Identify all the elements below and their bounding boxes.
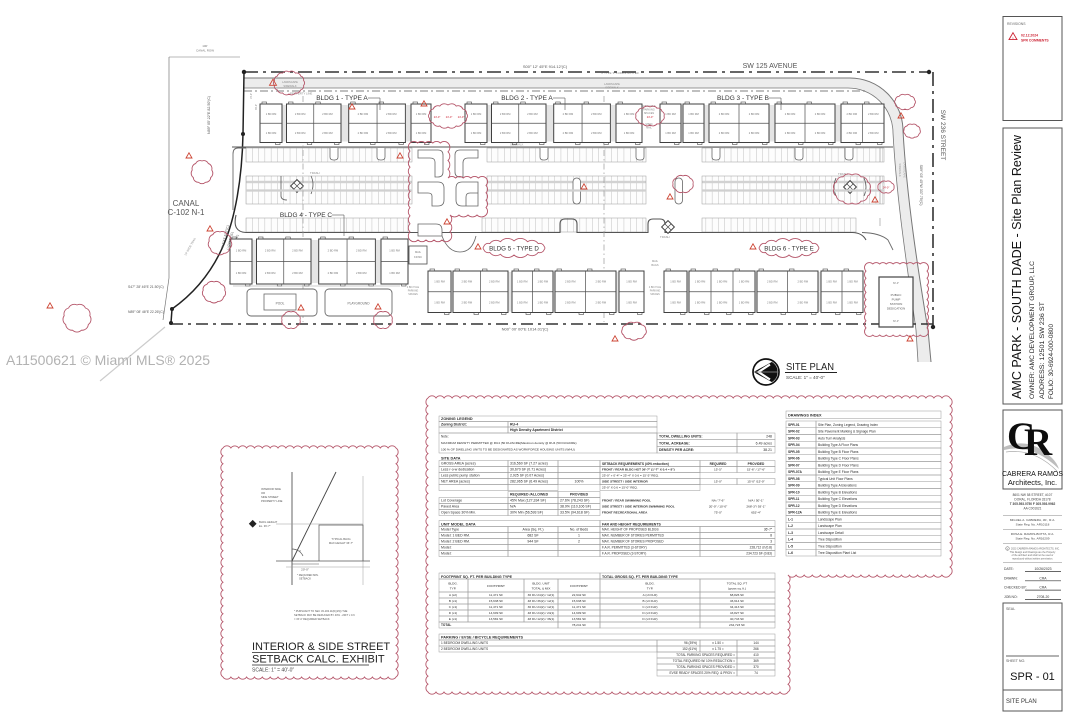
svg-text:SPR COMMENTS: SPR COMMENTS	[1021, 39, 1049, 43]
svg-text:Tree Disposition: Tree Disposition	[818, 538, 842, 542]
svg-text:A (x3 FLR): A (x3 FLR)	[643, 593, 658, 597]
svg-text:410: 410	[753, 653, 759, 657]
svg-text:682 SF: 682 SF	[527, 534, 538, 538]
svg-text:1 BD RM: 1 BD RM	[626, 280, 637, 284]
svg-text:SW 125 AVENUE: SW 125 AVENUE	[743, 63, 798, 70]
svg-text:BLDG 6 - TYPE E: BLDG 6 - TYPE E	[764, 246, 813, 253]
svg-text:Auto Turn Analysis: Auto Turn Analysis	[818, 436, 846, 440]
svg-text:SITE PLAN: SITE PLAN	[786, 361, 834, 373]
svg-text:ZONING LEGEND: ZONING LEGEND	[441, 417, 473, 421]
svg-text:36'-7″: 36'-7″	[764, 528, 773, 532]
svg-text:AMC PARK - SOUTH DADE - Site P: AMC PARK - SOUTH DADE - Site Plan Review	[1009, 134, 1024, 399]
svg-text:T 305.593.0750 F 305.593.9962: T 305.593.0750 F 305.593.9962	[1010, 502, 1056, 506]
svg-text:NA / 7'-6″: NA / 7'-6″	[712, 499, 726, 503]
svg-text:35'-0″: 35'-0″	[255, 104, 258, 110]
svg-text:8: 8	[770, 534, 772, 538]
svg-text:45% Max (127,334 SF): 45% Max (127,334 SF)	[510, 499, 546, 503]
svg-text:N89° 05′ 22″E 82.50′(C): N89° 05′ 22″E 82.50′(C)	[207, 96, 211, 134]
svg-text:S47° 28′ 46″E 21.50′(C): S47° 28′ 46″E 21.50′(C)	[128, 285, 164, 289]
svg-text:234,723 SF (0.83): 234,723 SF (0.83)	[746, 552, 772, 556]
svg-text:Note:: Note:	[441, 435, 449, 439]
svg-text:Paved Area: Paved Area	[441, 505, 459, 509]
svg-text:2 BD RM: 2 BD RM	[527, 131, 538, 135]
svg-text:CABRERA RAMOS: CABRERA RAMOS	[1002, 471, 1063, 478]
svg-text:State Reg. No. AR10118: State Reg. No. AR10118	[1016, 523, 1050, 527]
svg-text:2 BD RM: 2 BD RM	[489, 280, 500, 284]
svg-text:2 BD RM: 2 BD RM	[719, 131, 730, 135]
svg-text:1 BD RM: 1 BD RM	[717, 300, 728, 304]
svg-text:1 BD RM: 1 BD RM	[517, 300, 528, 304]
svg-text:PUBLIC: PUBLIC	[891, 293, 903, 297]
svg-text:1 BD RM: 1 BD RM	[739, 280, 750, 284]
svg-text:L-2: L-2	[788, 524, 793, 528]
svg-text:20'-0″ / 10'-0″: 20'-0″ / 10'-0″	[709, 505, 728, 509]
svg-text:REVISIONS: REVISIONS	[1007, 22, 1026, 26]
svg-text:2 BD RM: 2 BD RM	[322, 112, 333, 116]
svg-text:74: 74	[754, 671, 758, 675]
svg-text:2 BD RM: 2 BD RM	[328, 249, 339, 253]
svg-text:N/A / 50'-1″: N/A / 50'-1″	[748, 499, 764, 503]
svg-text:SPR-07: SPR-07	[788, 463, 800, 467]
svg-text:E (x1): E (x1)	[449, 617, 457, 621]
svg-text:60'-0″: 60'-0″	[893, 320, 899, 323]
svg-text:2 BD RM: 2 BD RM	[356, 249, 367, 253]
svg-text:2 BD RM: 2 BD RM	[749, 131, 760, 135]
svg-text:2 BD RM: 2 BD RM	[356, 271, 367, 275]
svg-text:SIDEWALK: SIDEWALK	[898, 163, 902, 177]
svg-text:24'-0″: 24'-0″	[458, 115, 465, 119]
svg-text:SPACES: SPACES	[644, 111, 655, 115]
svg-text:TRASH: TRASH	[310, 171, 319, 175]
svg-text:2 BD RM: 2 BD RM	[846, 112, 857, 116]
svg-text:BLDG 4 - TYPE C: BLDG 4 - TYPE C	[280, 212, 333, 219]
svg-text:Building Type C Floor Plans: Building Type C Floor Plans	[818, 457, 859, 461]
svg-text:F.A.R. PERMITTED (3-STORY): F.A.R. PERMITTED (3-STORY)	[602, 546, 647, 550]
svg-text:2 BD RM: 2 BD RM	[295, 131, 306, 135]
svg-text:SPR-12: SPR-12	[788, 504, 800, 508]
svg-text:33.5% (94,618 SF): 33.5% (94,618 SF)	[560, 511, 589, 515]
svg-text:1 BD RM: 1 BD RM	[416, 112, 427, 116]
svg-text:BLDG 2 - TYPE A: BLDG 2 - TYPE A	[501, 95, 553, 102]
svg-text:DRAWINGS INDEX: DRAWINGS INDEX	[788, 414, 822, 418]
svg-text:1 BD RM: 1 BD RM	[665, 131, 676, 135]
svg-text:CRA: CRA	[1039, 586, 1047, 590]
svg-text:30,670 SF (0.71 Acres): 30,670 SF (0.71 Acres)	[510, 468, 546, 472]
svg-text:1 BD RM: 1 BD RM	[389, 271, 400, 275]
svg-text:2,925 SF (0.07 Acres): 2,925 SF (0.07 Acres)	[510, 474, 544, 478]
svg-text:KIOSK: KIOSK	[414, 255, 422, 259]
svg-text:152 (61%): 152 (61%)	[682, 647, 697, 651]
svg-text:SPR-03: SPR-03	[788, 436, 800, 440]
svg-text:* REQUIRED MIN.: * REQUIRED MIN.	[297, 573, 319, 577]
svg-text:25'-0″ + 0'-4″ = 25'-4″ X 0.6: 25'-0″ + 0'-4″ = 25'-4″ X 0.6 = 15'-5″ R…	[602, 474, 659, 478]
svg-text:100%: 100%	[575, 480, 584, 484]
svg-text:F.A.R. PROPOSED (3-STORY): F.A.R. PROPOSED (3-STORY)	[602, 552, 646, 556]
svg-text:11,471 SF: 11,471 SF	[572, 605, 586, 609]
svg-text:13,581 SF: 13,581 SF	[489, 617, 503, 621]
svg-text:2 BD RM: 2 BD RM	[328, 271, 339, 275]
svg-text:248: 248	[766, 435, 772, 439]
svg-text:2 BD RM: 2 BD RM	[565, 280, 576, 284]
svg-text:REQUIRED: REQUIRED	[710, 462, 728, 466]
svg-text:SPACES: SPACES	[408, 293, 418, 296]
svg-text:FRONT / REAR BLDG HGT 36'-7″ (: FRONT / REAR BLDG HGT 36'-7″ (1'-7″ X 0.…	[602, 468, 675, 472]
svg-text:PLAYGROUND: PLAYGROUND	[347, 302, 370, 306]
svg-text:SITE DATA: SITE DATA	[441, 456, 461, 460]
svg-text:78,241 SF: 78,241 SF	[572, 623, 586, 627]
svg-text:SPR-11: SPR-11	[788, 497, 800, 501]
svg-text:1 BD RM: 1 BD RM	[434, 300, 445, 304]
svg-text:Building Type A Floor Plans: Building Type A Floor Plans	[818, 443, 858, 447]
svg-text:PROVIDED: PROVIDED	[748, 462, 765, 466]
svg-text:BLDG 1 - TYPE A: BLDG 1 - TYPE A	[316, 95, 368, 102]
svg-text:1 BD RM: 1 BD RM	[537, 300, 548, 304]
svg-text:Less public pump station: Less public pump station	[441, 474, 480, 478]
svg-text:1 BD RM: 1 BD RM	[717, 280, 728, 284]
svg-text:Site Plan, Zoning Legend, Draw: Site Plan, Zoning Legend, Drawing Index	[818, 423, 878, 427]
svg-text:2 BD RM: 2 BD RM	[595, 280, 606, 284]
svg-text:234,723 SF: 234,723 SF	[729, 623, 745, 627]
svg-text:2 BD RM: 2 BD RM	[500, 112, 511, 116]
svg-text:MAX. NUMBER OF STORIES PROPOSE: MAX. NUMBER OF STORIES PROPOSED	[602, 540, 664, 544]
svg-text:2 BD RM: 2 BD RM	[292, 271, 303, 275]
svg-text:6.49 acres: 6.49 acres	[756, 441, 773, 445]
svg-text:R: R	[1024, 421, 1053, 464]
svg-text:SPR - 01: SPR - 01	[1010, 671, 1055, 683]
svg-text:REQUIRED /ALLOWED: REQUIRED /ALLOWED	[510, 493, 549, 497]
svg-text:SPR-01: SPR-01	[788, 423, 800, 427]
svg-text:C (x3 FLR): C (x3 FLR)	[642, 605, 657, 609]
svg-text:PARKING: PARKING	[643, 108, 654, 112]
svg-text:FOLIO: 30-6924-000-0800: FOLIO: 30-6924-000-0800	[1049, 323, 1055, 399]
svg-text:15'-0″: 15'-0″	[714, 480, 723, 484]
svg-text:SPR-04: SPR-04	[788, 443, 800, 447]
svg-text:Building Type D Elevations: Building Type D Elevations	[818, 504, 858, 508]
svg-text:15,638 SF: 15,638 SF	[489, 599, 503, 603]
svg-text:N89° 08′ 46″E 22.26′(C): N89° 08′ 46″E 22.26′(C)	[128, 310, 164, 314]
svg-text:2 BD RM: 2 BD RM	[785, 112, 796, 116]
svg-text:LANDSCAPE: LANDSCAPE	[282, 80, 298, 84]
svg-text:SEAL: SEAL	[1006, 607, 1015, 611]
svg-text:Model: 2 BED RM.: Model: 2 BED RM.	[441, 540, 470, 544]
svg-text:2 BD RM: 2 BD RM	[358, 131, 369, 135]
svg-text:L-3: L-3	[788, 531, 793, 535]
svg-text:TOTAL REQUIRED W/ 10% REDUCTIO: TOTAL REQUIRED W/ 10% REDUCTION =	[673, 659, 735, 663]
svg-text:2 BD RM: 2 BD RM	[767, 280, 778, 284]
svg-text:TYP.: TYP.	[450, 587, 457, 591]
svg-text:266: 266	[753, 647, 759, 651]
svg-text:SETBACK CALC. EXHIBIT: SETBACK CALC. EXHIBIT	[252, 654, 385, 666]
svg-text:1 BD RM: 1 BD RM	[624, 112, 635, 116]
svg-text:B (x1): B (x1)	[449, 599, 457, 603]
svg-text:TOTAL: TOTAL	[441, 623, 451, 627]
svg-text:2 BD RM: 2 BD RM	[527, 112, 538, 116]
svg-text:2 BD RM: 2 BD RM	[500, 131, 511, 135]
svg-text:2 BD RM: 2 BD RM	[749, 112, 760, 116]
svg-text:Building Type B Elevations: Building Type B Elevations	[818, 490, 857, 494]
svg-text:MAX. HEIGHT OF PROPOSED BLDGS: MAX. HEIGHT OF PROPOSED BLDGS	[602, 528, 659, 532]
svg-text:2 BD RM: 2 BD RM	[719, 112, 730, 116]
svg-text:Building Type B Floor Plans: Building Type B Floor Plans	[818, 450, 859, 454]
svg-text:2 BD RM: 2 BD RM	[595, 300, 606, 304]
svg-text:B (x3 FLR): B (x3 FLR)	[643, 599, 658, 603]
svg-text:1 BD RM: 1 BD RM	[266, 131, 277, 135]
svg-text:ADDRESS: 12501 SW 236 ST: ADDRESS: 12501 SW 236 ST	[1040, 302, 1046, 399]
svg-text:2 BD RM: 2 BD RM	[815, 131, 826, 135]
svg-text:FRONT RECREATIONAL AREA: FRONT RECREATIONAL AREA	[602, 511, 648, 515]
svg-text:13,581 SF: 13,581 SF	[572, 617, 586, 621]
svg-text:BLDG.: BLDG.	[448, 582, 457, 586]
svg-text:2 BD RM: 2 BD RM	[461, 280, 472, 284]
svg-text:Model:: Model:	[441, 552, 452, 556]
svg-text:2 BD RM: 2 BD RM	[591, 131, 602, 135]
svg-text:15'-6″ / 17'-6″: 15'-6″ / 17'-6″	[747, 468, 766, 472]
svg-text:SCALE: 1″ = 40′-0″: SCALE: 1″ = 40′-0″	[786, 375, 825, 380]
svg-text:SPR-07A: SPR-07A	[788, 470, 803, 474]
svg-text:Open Space 30% Min.: Open Space 30% Min.	[441, 511, 476, 515]
svg-text:1 BD RM: 1 BD RM	[670, 280, 681, 284]
svg-text:BLDG 5 - TYPE D: BLDG 5 - TYPE D	[489, 246, 539, 253]
svg-text:BLDG 3 - TYPE B: BLDG 3 - TYPE B	[717, 95, 769, 102]
svg-text:A (x2): A (x2)	[449, 593, 457, 597]
svg-text:Landscape Detail: Landscape Detail	[818, 531, 844, 535]
svg-text:GROSS AREA (acres): GROSS AREA (acres)	[441, 462, 476, 466]
svg-text:OWNER: AMC DEVELOPMENT GROUP,: OWNER: AMC DEVELOPMENT GROUP, LLC	[1030, 260, 1036, 399]
svg-text:1 BD RM: 1 BD RM	[389, 249, 400, 253]
svg-text:100 % OF DWELLING UNITS TO BE: 100 % OF DWELLING UNITS TO BE DESIGNATED…	[441, 448, 575, 452]
svg-text:2 BD RM: 2 BD RM	[565, 300, 576, 304]
svg-text:3: 3	[770, 540, 772, 544]
svg-text:SPR-10: SPR-10	[788, 490, 800, 494]
svg-text:(gross sq. ft.): (gross sq. ft.)	[728, 587, 746, 591]
svg-text:ROSA E. RAMOS-BOTTA, R.A.: ROSA E. RAMOS-BOTTA, R.A.	[1011, 532, 1055, 536]
svg-text:SW 236 STREET: SW 236 STREET	[939, 110, 946, 161]
svg-text:36 DU 24(2) / 12(1): 36 DU 24(2) / 12(1)	[528, 593, 555, 597]
svg-text:100': 100'	[202, 44, 208, 48]
svg-text:DATE:: DATE:	[1004, 567, 1014, 571]
svg-text:Architects, Inc.: Architects, Inc.	[1008, 478, 1057, 487]
svg-text:TOTAL SQ. FT: TOTAL SQ. FT	[727, 582, 748, 586]
svg-text:1 BD RM: 1 BD RM	[695, 280, 706, 284]
svg-text:Building Type C Elevations: Building Type C Elevations	[818, 497, 858, 501]
svg-text:SIDE STREET: SIDE STREET	[261, 495, 279, 499]
svg-text:FRONT / REAR SWIMMING POOL: FRONT / REAR SWIMMING POOL	[602, 499, 651, 503]
svg-text:96 (39%): 96 (39%)	[684, 641, 697, 645]
svg-text:TYP.: TYP.	[647, 587, 654, 591]
svg-text:JOB NO:: JOB NO:	[1004, 595, 1018, 599]
svg-text:2708-20: 2708-20	[1037, 595, 1050, 599]
svg-text:Tree Disposition Plant List: Tree Disposition Plant List	[818, 551, 856, 555]
svg-text:370: 370	[753, 665, 759, 669]
svg-text:68,826 SF: 68,826 SF	[730, 593, 744, 597]
svg-text:DORAL, FLORIDA 33178: DORAL, FLORIDA 33178	[1014, 498, 1050, 502]
svg-text:2 BD RM: 2 BD RM	[591, 112, 602, 116]
svg-text:2: 2	[578, 540, 580, 544]
svg-text:x 1.50 =: x 1.50 =	[712, 641, 724, 645]
svg-text:INTERIOR SIDE: INTERIOR SIDE	[261, 487, 281, 491]
svg-text:2 BD RM: 2 BD RM	[846, 131, 857, 135]
svg-text:1 BD RM: 1 BD RM	[434, 280, 445, 284]
svg-text:Building Type A Elevations: Building Type A Elevations	[818, 484, 857, 488]
svg-text:Building Type E Elevations: Building Type E Elevations	[818, 511, 857, 515]
svg-text:TOTAL GROSS SQ. FT. PER BUILDI: TOTAL GROSS SQ. FT. PER BUILDING TYPE	[602, 575, 678, 579]
svg-text:2 BD RM: 2 BD RM	[358, 112, 369, 116]
svg-text:1 BD RM: 1 BD RM	[688, 131, 699, 135]
svg-text:SPR-02: SPR-02	[788, 430, 800, 434]
svg-text:Typical Unit Floor Plans: Typical Unit Floor Plans	[818, 477, 853, 481]
svg-text:15'-0″: 15'-0″	[250, 93, 253, 99]
svg-text:2 BD RM: 2 BD RM	[767, 300, 778, 304]
svg-text:MIGUEL A. CABRERA, JR., R.A.: MIGUEL A. CABRERA, JR., R.A.	[1010, 518, 1055, 522]
svg-text:BLDG. UNIT: BLDG. UNIT	[532, 582, 549, 586]
svg-text:2 BD RM: 2 BD RM	[489, 300, 500, 304]
svg-text:2 BD RM: 2 BD RM	[386, 112, 397, 116]
svg-text:SPR-08: SPR-08	[788, 477, 800, 481]
svg-text:1 BD RM: 1 BD RM	[471, 131, 482, 135]
svg-text:1 BD RM: 1 BD RM	[266, 112, 277, 116]
svg-text:SETBACK REQUIREMENTS (40% redu: SETBACK REQUIREMENTS (40% reduction)	[602, 462, 669, 466]
svg-text:MAX HEIGHT 36'-7″: MAX HEIGHT 36'-7″	[329, 541, 353, 545]
svg-text:Building Type D Floor Plans: Building Type D Floor Plans	[818, 463, 859, 467]
svg-text:48 DU 24(2) / 24(1): 48 DU 24(2) / 24(1)	[528, 611, 555, 615]
svg-text:TOTAL DWELLING UNITS:: TOTAL DWELLING UNITS:	[659, 435, 703, 439]
svg-text:DRAWN:: DRAWN:	[1004, 576, 1018, 580]
svg-text:316,560 SF (7.27 acres): 316,560 SF (7.27 acres)	[510, 462, 548, 466]
svg-text:OR: OR	[261, 491, 265, 495]
svg-text:2 BD RM: 2 BD RM	[868, 131, 879, 135]
svg-text:30% Min (56,593 SF): 30% Min (56,593 SF)	[510, 511, 543, 515]
svg-text:2 BD RM: 2 BD RM	[815, 112, 826, 116]
svg-text:1 BD RM: 1 BD RM	[517, 280, 528, 284]
svg-text:60'-0″: 60'-0″	[893, 282, 899, 285]
svg-text:1 BEDROOM DWELLING UNITS: 1 BEDROOM DWELLING UNITS	[441, 641, 488, 645]
svg-text:34,413 SF: 34,413 SF	[730, 605, 744, 609]
svg-text:2 BD RM: 2 BD RM	[295, 112, 306, 116]
svg-text:CANAL: CANAL	[173, 199, 200, 208]
svg-text:2 BD RM: 2 BD RM	[563, 131, 574, 135]
svg-text:48 DU 36(2) / 12(1): 48 DU 36(2) / 12(1)	[528, 599, 555, 603]
svg-text:2 BD RM: 2 BD RM	[265, 249, 276, 253]
svg-text:STATION: STATION	[890, 302, 903, 306]
svg-text:x 1.75 =: x 1.75 =	[712, 647, 724, 651]
svg-text:D (x1): D (x1)	[449, 611, 457, 615]
svg-text:TOTAL PARKING SPACES REQUIRED: TOTAL PARKING SPACES REQUIRED =	[676, 653, 735, 657]
svg-text:UNIT MODEL DATA: UNIT MODEL DATA	[441, 522, 476, 526]
svg-text:144: 144	[753, 641, 759, 645]
svg-text:653'-4″: 653'-4″	[751, 511, 762, 515]
svg-text:EVSE READY SPACES 20% REQ. & P: EVSE READY SPACES 20% REQ. & PROV =	[669, 671, 735, 675]
svg-text:2 BD RM: 2 BD RM	[563, 112, 574, 116]
svg-text:Area (Sq. Ft.): Area (Sq. Ft.)	[522, 528, 543, 532]
svg-text:SHEET NO.: SHEET NO.	[1006, 659, 1025, 663]
svg-text:Zoning District:: Zoning District:	[441, 423, 467, 427]
svg-text:S00° 12′ 45″E 914.12′(C): S00° 12′ 45″E 914.12′(C)	[523, 64, 568, 69]
svg-text:38.9% (110,106 SF): 38.9% (110,106 SF)	[560, 505, 591, 509]
svg-text:SPR-09: SPR-09	[788, 484, 800, 488]
svg-text:Lot Coverage: Lot Coverage	[441, 499, 462, 503]
svg-text:TOTAL ACREAGE:: TOTAL ACREAGE:	[659, 441, 690, 445]
svg-text:Building Type E Floor Plans: Building Type E Floor Plans	[818, 470, 859, 474]
svg-text:TOTAL & MIX: TOTAL & MIX	[532, 587, 551, 591]
svg-text:C (x1): C (x1)	[449, 605, 457, 609]
svg-text:75'-0″: 75'-0″	[714, 511, 723, 515]
svg-text:Less r-o-w dedication: Less r-o-w dedication	[441, 468, 474, 472]
svg-text:State Reg. No. AR16209: State Reg. No. AR16209	[1016, 537, 1050, 541]
svg-text:1 BD RM: 1 BD RM	[537, 280, 548, 284]
svg-text:DENSITY PER ACRE:: DENSITY PER ACRE:	[659, 448, 694, 452]
svg-text:= 15'-0' REQUIRED SETBACK: = 15'-0' REQUIRED SETBACK	[294, 617, 330, 621]
svg-text:11,471 SF: 11,471 SF	[489, 605, 503, 609]
svg-text:TRASH: TRASH	[660, 235, 669, 239]
svg-text:MAIL: MAIL	[646, 127, 652, 130]
svg-text:BLDG.: BLDG.	[645, 582, 654, 586]
svg-text:NET AREA (acres): NET AREA (acres)	[441, 480, 470, 484]
svg-text:02.12.2024: 02.12.2024	[1021, 34, 1038, 38]
svg-text:LANDSCAPE: LANDSCAPE	[903, 162, 907, 178]
svg-text:2 BD RM: 2 BD RM	[461, 300, 472, 304]
svg-text:EL. 36'-7″: EL. 36'-7″	[259, 524, 271, 528]
svg-text:SITE PLAN: SITE PLAN	[1006, 699, 1037, 705]
svg-text:1 BD RM: 1 BD RM	[826, 300, 837, 304]
svg-text:MAXIMUM DENSITY PERMITTED @ RU: MAXIMUM DENSITY PERMITTED @ RU4 (50 DU/A…	[441, 441, 577, 445]
svg-text:SPR-12A: SPR-12A	[788, 511, 803, 515]
svg-text:14,609 SF: 14,609 SF	[489, 611, 503, 615]
svg-text:TYPICAL BLDG: TYPICAL BLDG	[331, 537, 350, 541]
svg-text:10/26/2023: 10/26/2023	[1035, 567, 1052, 571]
svg-text:SPR-05: SPR-05	[788, 450, 800, 454]
svg-text:369: 369	[753, 659, 759, 663]
svg-text:2 BD RM: 2 BD RM	[292, 249, 303, 253]
svg-text:MAX. NUMBER OF STORIES PERMITT: MAX. NUMBER OF STORIES PERMITTED	[602, 534, 665, 538]
svg-text:N/A: N/A	[510, 505, 517, 509]
svg-text:48 DU 12(2) / 36(1): 48 DU 12(2) / 36(1)	[528, 617, 555, 621]
svg-text:SCALE: 1″ = 40'-0″: SCALE: 1″ = 40'-0″	[252, 668, 294, 674]
svg-text:AA C001621: AA C001621	[1024, 507, 1042, 511]
svg-text:1 BD RM: 1 BD RM	[688, 112, 699, 116]
svg-text:TOTAL PARKING SPACES PROVIDED: TOTAL PARKING SPACES PROVIDED =	[676, 665, 735, 669]
svg-text:Model: 1 BED RM.: Model: 1 BED RM.	[441, 534, 470, 538]
svg-text:14,609 SF: 14,609 SF	[572, 611, 586, 615]
svg-text:SIDE STREET / SIDE INTERIOR S: SIDE STREET / SIDE INTERIOR SWIMMING POO…	[602, 505, 675, 509]
svg-text:36 DU 24(2) / 12(1): 36 DU 24(2) / 12(1)	[528, 605, 555, 609]
svg-text:1 BD RM: 1 BD RM	[826, 280, 837, 284]
svg-text:1 BD RM: 1 BD RM	[739, 300, 750, 304]
svg-text:43,827 SF: 43,827 SF	[730, 611, 744, 615]
svg-text:N00° 00′ 00″E 1014.01′(C): N00° 00′ 00″E 1014.01′(C)	[502, 327, 549, 332]
svg-text:* PURSUANT TO SEC 33-193.11(D): * PURSUANT TO SEC 33-193.11(D)(29)) THE	[294, 609, 348, 613]
svg-text:2 BD RM: 2 BD RM	[868, 112, 879, 116]
svg-text:20'-0″: 20'-0″	[301, 568, 309, 572]
svg-text:22,942 SF: 22,942 SF	[572, 593, 586, 597]
svg-text:CANAL ROW: CANAL ROW	[196, 49, 214, 53]
svg-text:Tree Disposition: Tree Disposition	[818, 544, 842, 548]
svg-text:BLDG HEIGHT: BLDG HEIGHT	[259, 520, 278, 524]
svg-text:SIDEWALK: SIDEWALK	[605, 86, 619, 90]
svg-text:PARKING / EVSE / BICYCLE REQUI: PARKING / EVSE / BICYCLE REQUIREMENTS	[441, 636, 523, 640]
svg-text:2 BD RM: 2 BD RM	[797, 280, 808, 284]
svg-text:268'-3″/ 93'-1″: 268'-3″/ 93'-1″	[746, 505, 766, 509]
svg-text:25'-0″ X 0.6 = 15'-0″ REQ.: 25'-0″ X 0.6 = 15'-0″ REQ.	[602, 486, 638, 490]
svg-text:CHECKED BY:: CHECKED BY:	[1004, 586, 1027, 590]
svg-text:L-1: L-1	[788, 517, 793, 521]
svg-text:SETBACK MAY BE REDUCED BY 40%: SETBACK MAY BE REDUCED BY 40% - 20FT x 0…	[294, 613, 355, 617]
svg-text:1 BD RM: 1 BD RM	[624, 131, 635, 135]
svg-text:1 BD RM: 1 BD RM	[236, 271, 247, 275]
svg-text:FOOTPRINT SQ. FT. PER BUILDING: FOOTPRINT SQ. FT. PER BUILDING TYPE	[441, 575, 513, 579]
svg-text:1 BD RM: 1 BD RM	[847, 300, 858, 304]
svg-text:MAIL: MAIL	[415, 250, 422, 254]
svg-text:C-102 N-1: C-102 N-1	[168, 208, 205, 217]
